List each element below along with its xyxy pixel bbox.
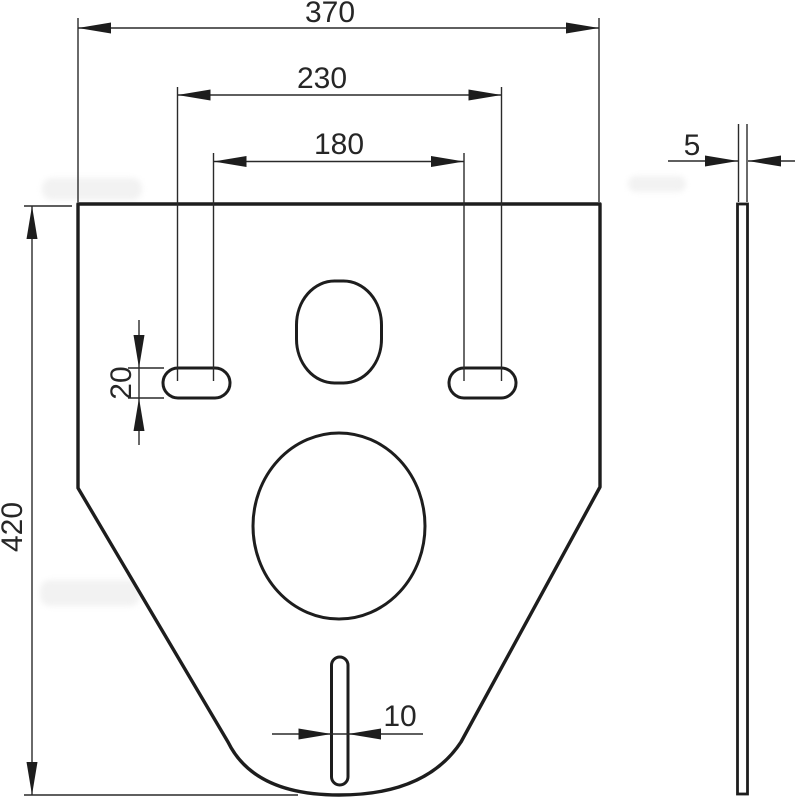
dim-5-label: 5 bbox=[684, 129, 701, 162]
technical-drawing-canvas: 370 230 180 420 bbox=[0, 0, 795, 800]
dim-370-arrow-left bbox=[78, 23, 111, 34]
dim-20-label: 20 bbox=[105, 366, 138, 399]
large-center-opening bbox=[253, 433, 425, 619]
dim-180-label: 180 bbox=[314, 128, 364, 161]
side-view-plate bbox=[738, 204, 748, 794]
dim-420-label: 420 bbox=[0, 502, 29, 552]
dim-420-arrow-top bbox=[27, 206, 38, 239]
dim-10-label: 10 bbox=[383, 700, 416, 733]
dim-420-arrow-bottom bbox=[27, 762, 38, 795]
bottom-slot-opening bbox=[332, 657, 349, 785]
dim-overall-width: 370 bbox=[78, 0, 599, 202]
dim-thickness: 5 bbox=[668, 124, 795, 202]
dim-5-arrow-left bbox=[705, 156, 738, 167]
technical-drawing-page: 370 230 180 420 bbox=[0, 0, 795, 800]
dim-230-arrow-left bbox=[178, 90, 211, 101]
top-oval-opening bbox=[297, 281, 382, 383]
side-view bbox=[738, 204, 748, 794]
front-view bbox=[78, 204, 600, 795]
dim-230-label: 230 bbox=[297, 62, 347, 95]
dim-180-arrow-right bbox=[431, 156, 464, 167]
dim-230-arrow-right bbox=[469, 90, 502, 101]
dim-180-arrow-left bbox=[214, 156, 247, 167]
right-mounting-slot bbox=[449, 368, 516, 398]
dim-370-arrow-right bbox=[566, 23, 599, 34]
left-mounting-slot bbox=[163, 368, 230, 398]
dim-370-label: 370 bbox=[305, 0, 355, 29]
dim-5-arrow-right bbox=[748, 156, 781, 167]
